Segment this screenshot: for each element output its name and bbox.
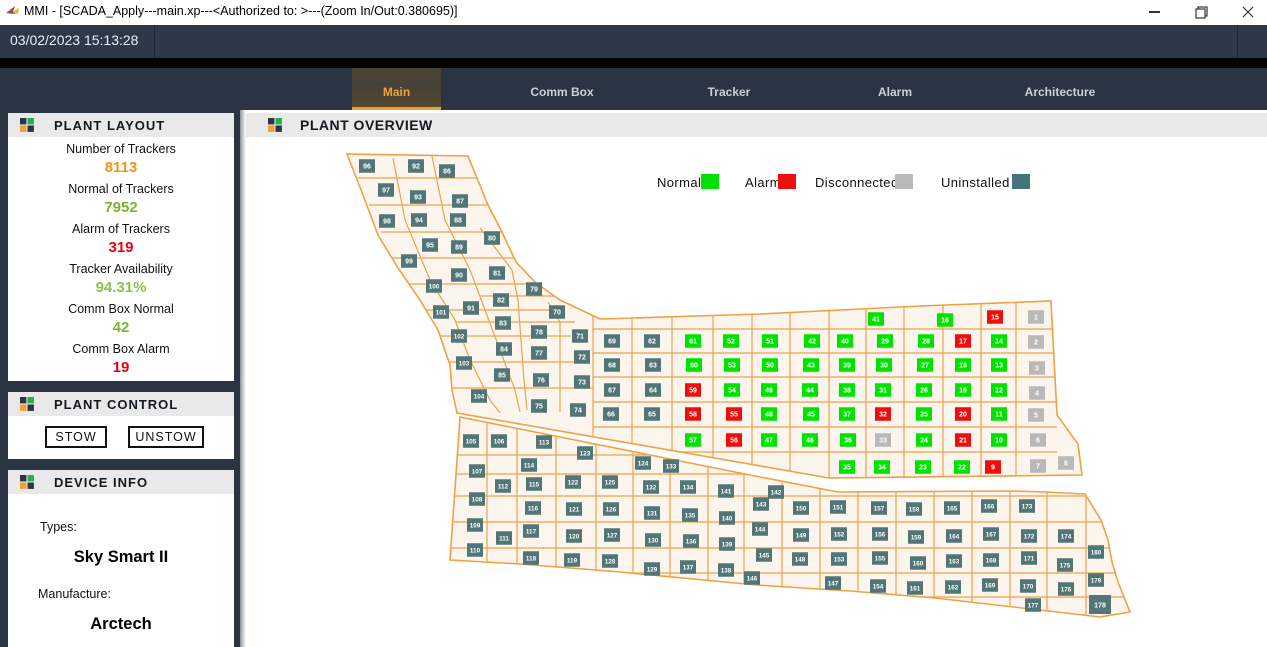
svg-text:136: 136 xyxy=(686,538,697,545)
svg-text:101: 101 xyxy=(436,309,447,316)
svg-text:120: 120 xyxy=(569,533,580,540)
svg-text:69: 69 xyxy=(608,338,616,345)
svg-text:92: 92 xyxy=(412,163,420,170)
svg-text:33: 33 xyxy=(879,437,887,444)
svg-text:116: 116 xyxy=(528,505,539,512)
svg-text:126: 126 xyxy=(606,506,617,513)
svg-text:17: 17 xyxy=(959,338,967,345)
svg-text:51: 51 xyxy=(766,338,774,345)
svg-text:67: 67 xyxy=(608,387,616,394)
svg-text:96: 96 xyxy=(363,163,371,170)
svg-text:11: 11 xyxy=(995,411,1003,418)
svg-text:162: 162 xyxy=(948,584,959,591)
svg-text:83: 83 xyxy=(499,320,507,327)
svg-text:52: 52 xyxy=(727,338,735,345)
svg-text:56: 56 xyxy=(730,437,738,444)
svg-text:38: 38 xyxy=(843,387,851,394)
svg-text:153: 153 xyxy=(834,556,845,563)
svg-text:78: 78 xyxy=(535,329,543,336)
svg-text:113: 113 xyxy=(539,439,550,446)
svg-text:138: 138 xyxy=(721,567,732,574)
svg-text:127: 127 xyxy=(607,532,618,539)
svg-text:21: 21 xyxy=(959,437,967,444)
svg-text:31: 31 xyxy=(879,387,887,394)
svg-text:107: 107 xyxy=(472,468,483,475)
svg-text:131: 131 xyxy=(647,510,658,517)
svg-text:90: 90 xyxy=(455,272,463,279)
svg-text:159: 159 xyxy=(911,534,922,541)
svg-text:35: 35 xyxy=(843,464,851,471)
svg-text:140: 140 xyxy=(722,515,733,522)
svg-text:147: 147 xyxy=(828,580,839,587)
svg-text:171: 171 xyxy=(1024,555,1035,562)
svg-text:167: 167 xyxy=(986,531,997,538)
svg-text:108: 108 xyxy=(472,496,483,503)
svg-text:115: 115 xyxy=(529,481,540,488)
svg-text:72: 72 xyxy=(578,354,586,361)
svg-text:37: 37 xyxy=(843,411,851,418)
svg-text:3: 3 xyxy=(1035,365,1039,372)
svg-text:19: 19 xyxy=(959,387,967,394)
svg-text:157: 157 xyxy=(874,505,885,512)
svg-text:14: 14 xyxy=(995,338,1003,345)
svg-text:1: 1 xyxy=(1034,314,1038,321)
svg-text:77: 77 xyxy=(535,350,543,357)
svg-text:39: 39 xyxy=(843,362,851,369)
svg-text:100: 100 xyxy=(429,283,440,290)
svg-text:104: 104 xyxy=(474,393,485,400)
svg-text:82: 82 xyxy=(497,297,505,304)
svg-text:139: 139 xyxy=(722,541,733,548)
svg-text:53: 53 xyxy=(728,362,736,369)
svg-text:71: 71 xyxy=(576,333,584,340)
svg-text:48: 48 xyxy=(765,411,773,418)
svg-text:26: 26 xyxy=(920,387,928,394)
svg-text:148: 148 xyxy=(795,556,806,563)
svg-text:7: 7 xyxy=(1036,463,1040,470)
svg-text:73: 73 xyxy=(578,379,586,386)
svg-text:163: 163 xyxy=(949,558,960,565)
svg-text:89: 89 xyxy=(455,244,463,251)
svg-text:132: 132 xyxy=(646,484,657,491)
svg-text:42: 42 xyxy=(808,338,816,345)
svg-text:27: 27 xyxy=(921,362,929,369)
svg-text:6: 6 xyxy=(1036,437,1040,444)
svg-text:133: 133 xyxy=(666,463,677,470)
svg-text:9: 9 xyxy=(991,464,995,471)
svg-text:45: 45 xyxy=(807,411,815,418)
svg-text:55: 55 xyxy=(730,411,738,418)
svg-text:135: 135 xyxy=(685,512,696,519)
svg-text:94: 94 xyxy=(415,217,423,224)
svg-text:84: 84 xyxy=(500,346,508,353)
svg-text:99: 99 xyxy=(405,258,413,265)
svg-text:142: 142 xyxy=(771,489,782,496)
svg-text:143: 143 xyxy=(756,501,767,508)
svg-text:151: 151 xyxy=(833,504,844,511)
svg-text:20: 20 xyxy=(959,411,967,418)
svg-text:110: 110 xyxy=(470,547,481,554)
svg-text:60: 60 xyxy=(690,362,698,369)
svg-text:180: 180 xyxy=(1091,549,1102,556)
svg-text:129: 129 xyxy=(647,566,658,573)
svg-text:46: 46 xyxy=(806,437,814,444)
svg-text:41: 41 xyxy=(872,316,880,323)
svg-text:177: 177 xyxy=(1028,602,1039,609)
svg-text:175: 175 xyxy=(1060,562,1071,569)
svg-text:119: 119 xyxy=(567,557,578,564)
svg-text:158: 158 xyxy=(909,506,920,513)
svg-text:57: 57 xyxy=(689,437,697,444)
svg-text:4: 4 xyxy=(1035,390,1039,397)
svg-text:161: 161 xyxy=(910,585,921,592)
svg-text:76: 76 xyxy=(537,377,545,384)
svg-text:111: 111 xyxy=(499,535,509,542)
svg-text:124: 124 xyxy=(638,460,649,467)
svg-text:98: 98 xyxy=(383,218,391,225)
svg-text:118: 118 xyxy=(526,555,537,562)
svg-text:86: 86 xyxy=(443,168,451,175)
svg-text:121: 121 xyxy=(569,506,580,513)
svg-text:102: 102 xyxy=(454,333,465,340)
svg-text:178: 178 xyxy=(1094,603,1106,610)
svg-text:155: 155 xyxy=(875,555,886,562)
svg-text:88: 88 xyxy=(454,217,462,224)
svg-text:105: 105 xyxy=(466,438,477,445)
svg-text:169: 169 xyxy=(985,582,996,589)
svg-text:112: 112 xyxy=(498,483,509,490)
svg-text:62: 62 xyxy=(648,338,656,345)
svg-text:79: 79 xyxy=(530,286,538,293)
svg-text:18: 18 xyxy=(959,362,967,369)
svg-text:95: 95 xyxy=(426,242,434,249)
svg-text:145: 145 xyxy=(759,552,770,559)
svg-text:149: 149 xyxy=(796,532,807,539)
svg-text:15: 15 xyxy=(991,314,999,321)
svg-text:63: 63 xyxy=(649,362,657,369)
svg-text:40: 40 xyxy=(841,338,849,345)
svg-text:173: 173 xyxy=(1022,503,1033,510)
svg-text:114: 114 xyxy=(524,462,535,469)
svg-text:22: 22 xyxy=(958,464,966,471)
svg-text:91: 91 xyxy=(467,305,475,312)
svg-text:166: 166 xyxy=(984,503,995,510)
svg-text:29: 29 xyxy=(881,338,889,345)
svg-text:81: 81 xyxy=(493,270,501,277)
svg-text:66: 66 xyxy=(607,411,615,418)
svg-text:43: 43 xyxy=(807,362,815,369)
svg-text:93: 93 xyxy=(414,194,422,201)
svg-text:47: 47 xyxy=(765,437,773,444)
svg-text:85: 85 xyxy=(498,372,506,379)
svg-text:61: 61 xyxy=(689,338,697,345)
svg-text:87: 87 xyxy=(456,198,464,205)
svg-text:70: 70 xyxy=(553,309,561,316)
svg-text:123: 123 xyxy=(580,450,591,457)
svg-text:25: 25 xyxy=(920,411,928,418)
svg-text:130: 130 xyxy=(648,537,659,544)
svg-text:49: 49 xyxy=(765,387,773,394)
svg-text:5: 5 xyxy=(1034,412,1038,419)
svg-text:50: 50 xyxy=(766,362,774,369)
svg-text:8: 8 xyxy=(1064,460,1068,467)
svg-text:59: 59 xyxy=(689,387,697,394)
svg-text:128: 128 xyxy=(605,558,616,565)
svg-text:32: 32 xyxy=(879,411,887,418)
svg-text:65: 65 xyxy=(648,411,656,418)
svg-text:160: 160 xyxy=(913,560,924,567)
svg-text:117: 117 xyxy=(526,528,537,535)
svg-text:30: 30 xyxy=(880,362,888,369)
svg-text:172: 172 xyxy=(1024,533,1035,540)
svg-text:150: 150 xyxy=(796,505,807,512)
svg-text:12: 12 xyxy=(995,387,1003,394)
svg-text:68: 68 xyxy=(608,362,616,369)
svg-text:179: 179 xyxy=(1091,577,1102,584)
svg-text:16: 16 xyxy=(941,317,949,324)
svg-text:168: 168 xyxy=(986,557,997,564)
svg-text:74: 74 xyxy=(574,407,582,414)
svg-text:125: 125 xyxy=(605,479,616,486)
svg-text:97: 97 xyxy=(382,187,390,194)
svg-text:23: 23 xyxy=(919,464,927,471)
svg-text:165: 165 xyxy=(947,505,958,512)
svg-text:109: 109 xyxy=(470,522,481,529)
svg-text:164: 164 xyxy=(949,533,960,540)
svg-text:141: 141 xyxy=(721,488,732,495)
svg-text:54: 54 xyxy=(728,387,736,394)
svg-text:80: 80 xyxy=(488,235,496,242)
svg-text:152: 152 xyxy=(834,531,845,538)
svg-text:13: 13 xyxy=(995,362,1003,369)
svg-text:156: 156 xyxy=(875,531,886,538)
svg-text:103: 103 xyxy=(459,360,470,367)
svg-text:34: 34 xyxy=(878,464,886,471)
svg-text:24: 24 xyxy=(920,437,928,444)
svg-text:44: 44 xyxy=(806,387,814,394)
svg-text:176: 176 xyxy=(1061,586,1072,593)
svg-text:64: 64 xyxy=(649,387,657,394)
svg-text:170: 170 xyxy=(1023,583,1034,590)
svg-text:2: 2 xyxy=(1034,339,1038,346)
svg-text:174: 174 xyxy=(1061,533,1072,540)
svg-text:10: 10 xyxy=(995,437,1003,444)
svg-text:144: 144 xyxy=(755,526,766,533)
svg-text:75: 75 xyxy=(535,403,543,410)
svg-text:106: 106 xyxy=(494,438,505,445)
svg-text:146: 146 xyxy=(747,575,758,582)
svg-text:58: 58 xyxy=(689,411,697,418)
svg-text:36: 36 xyxy=(844,437,852,444)
svg-text:137: 137 xyxy=(683,564,694,571)
svg-text:122: 122 xyxy=(568,479,579,486)
svg-text:134: 134 xyxy=(683,484,694,491)
svg-text:28: 28 xyxy=(922,338,930,345)
svg-text:154: 154 xyxy=(873,583,884,590)
